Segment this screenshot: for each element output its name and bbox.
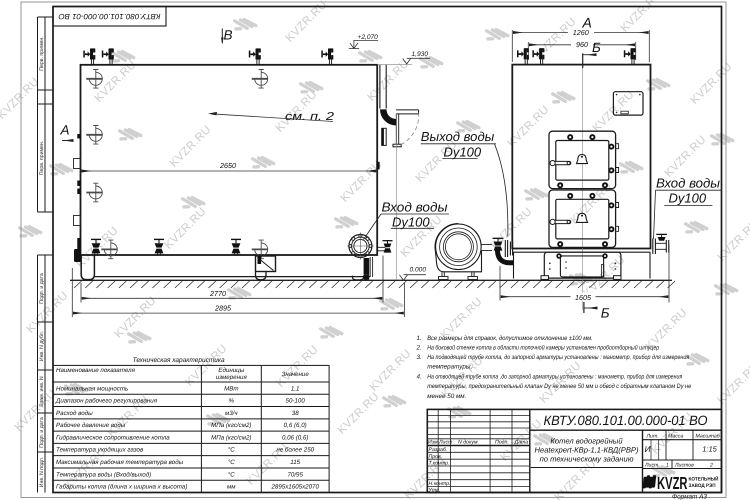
svg-text:1: 1 bbox=[666, 463, 669, 469]
svg-text:0,06 (0,6): 0,06 (0,6) bbox=[282, 435, 308, 442]
svg-text:ЗАВОД РЭП: ЗАВОД РЭП bbox=[689, 483, 716, 489]
svg-text:4.: 4. bbox=[417, 374, 422, 381]
svg-text:Dy100: Dy100 bbox=[392, 215, 430, 230]
svg-text:Масса: Масса bbox=[668, 434, 683, 440]
svg-text:Инв. N дубл.: Инв. N дубл. bbox=[39, 331, 45, 361]
svg-text:KVZR: KVZR bbox=[657, 473, 688, 493]
svg-text:°С: °С bbox=[228, 447, 235, 454]
svg-text:температуры.: температуры. bbox=[427, 364, 472, 371]
svg-text:КВТУ.080.101.00.000-01 ВО: КВТУ.080.101.00.000-01 ВО bbox=[544, 413, 708, 428]
svg-text:Инв. N подл.: Инв. N подл. bbox=[39, 457, 45, 488]
svg-text:0.000: 0.000 bbox=[410, 266, 427, 273]
svg-text:Номинальная мощность: Номинальная мощность bbox=[56, 385, 128, 392]
svg-text:Перв. примен.: Перв. примен. bbox=[39, 141, 45, 176]
svg-text:960: 960 bbox=[576, 40, 588, 49]
svg-text:2.: 2. bbox=[416, 345, 422, 352]
svg-text:измерения: измерения bbox=[216, 374, 248, 381]
svg-text:1,930: 1,930 bbox=[412, 51, 429, 58]
svg-text:115: 115 bbox=[290, 459, 300, 466]
svg-text:Выход воды: Выход воды bbox=[421, 129, 495, 144]
svg-text:Максимальная рабочая температу: Максимальная рабочая температура воды bbox=[56, 459, 184, 466]
svg-text:2895х1605х2070: 2895х1605х2070 bbox=[270, 484, 319, 491]
svg-text:2770: 2770 bbox=[209, 289, 226, 298]
svg-text:Габариты котла (длина х ширина: Габариты котла (длина х ширина х высота) bbox=[56, 484, 187, 491]
svg-text:Вход воды: Вход воды bbox=[656, 176, 720, 191]
svg-text:Лист: Лист bbox=[644, 463, 659, 469]
svg-text:0,6 (6,0): 0,6 (6,0) bbox=[284, 422, 307, 429]
svg-text:КОТЕЛЬНЫЙ: КОТЕЛЬНЫЙ bbox=[689, 476, 719, 483]
svg-text:Температура уходящих газов: Температура уходящих газов bbox=[56, 447, 144, 454]
svg-text:Взам. инв. N: Взам. инв. N bbox=[39, 376, 45, 407]
svg-text:2: 2 bbox=[709, 463, 713, 469]
svg-text:м3/ч: м3/ч bbox=[225, 410, 238, 417]
svg-text:°С: °С bbox=[228, 459, 235, 466]
svg-text:Значение: Значение bbox=[282, 371, 310, 378]
svg-text:Листов: Листов bbox=[674, 463, 694, 469]
svg-text:N докум.: N докум. bbox=[458, 440, 479, 446]
svg-text:Формат А3: Формат А3 bbox=[672, 493, 707, 500]
svg-text:Утв.: Утв. bbox=[429, 488, 441, 494]
svg-text:Dy100: Dy100 bbox=[444, 145, 482, 160]
svg-text:МВт: МВт bbox=[224, 385, 238, 392]
svg-text:МПа (кгс/см2): МПа (кгс/см2) bbox=[211, 422, 251, 429]
svg-text:1:15: 1:15 bbox=[702, 445, 717, 454]
svg-text:И: И bbox=[645, 444, 652, 454]
svg-text:Гидравлическое сопротивление к: Гидравлическое сопротивление котла bbox=[56, 435, 170, 442]
svg-text:Техническая характеристика: Техническая характеристика bbox=[133, 357, 225, 364]
svg-text:1605: 1605 bbox=[575, 293, 592, 302]
svg-text:Подп. и дата: Подп. и дата bbox=[39, 417, 45, 448]
svg-text:Б: Б bbox=[592, 40, 601, 55]
svg-text:Пров.: Пров. bbox=[429, 454, 443, 460]
svg-text:Вход воды: Вход воды bbox=[382, 200, 448, 215]
svg-text:МПа (кгс/см2): МПа (кгс/см2) bbox=[211, 435, 251, 442]
svg-text:Изм.: Изм. bbox=[428, 440, 439, 446]
svg-text:Единицы: Единицы bbox=[218, 367, 244, 374]
svg-text:Т.контр.: Т.контр. bbox=[429, 461, 450, 467]
svg-text:Heatexpert-КВр-1,1-КВД(РВР): Heatexpert-КВр-1,1-КВД(РВР) bbox=[534, 446, 638, 455]
svg-text:Лист: Лист bbox=[438, 440, 453, 446]
svg-text:На отводящей трубе котла ,до з: На отводящей трубе котла ,до запорной ар… bbox=[427, 374, 683, 381]
svg-text:не более 250: не более 250 bbox=[276, 447, 314, 454]
svg-text:Разраб.: Разраб. bbox=[429, 447, 448, 453]
svg-text:На боковой стенке котла в обла: На боковой стенке котла в области топочн… bbox=[427, 345, 659, 352]
svg-text:Перв. примен.: Перв. примен. bbox=[39, 36, 45, 71]
svg-text:А: А bbox=[60, 123, 70, 138]
svg-text:2895: 2895 bbox=[214, 304, 232, 313]
svg-text:70/95: 70/95 bbox=[287, 471, 303, 478]
svg-text:°С: °С bbox=[228, 471, 235, 478]
svg-text:50-100: 50-100 bbox=[286, 398, 306, 405]
svg-text:менее 50 мм.: менее 50 мм. bbox=[427, 393, 466, 400]
svg-text:Температура воды (Вход/выход): Температура воды (Вход/выход) bbox=[56, 471, 151, 478]
svg-text:1.: 1. bbox=[417, 335, 422, 342]
svg-text:Подп. и дата: Подп. и дата bbox=[39, 273, 45, 304]
svg-text:2650: 2650 bbox=[219, 161, 236, 170]
svg-text:Наименование показателя: Наименование показателя bbox=[56, 367, 136, 374]
svg-text:Дата: Дата bbox=[514, 440, 529, 446]
svg-text:Масштаб: Масштаб bbox=[696, 434, 721, 440]
svg-text:КВТУ.080.101.00.000-01 ВО: КВТУ.080.101.00.000-01 ВО bbox=[58, 12, 160, 21]
svg-text:Диапазон рабочего регулировани: Диапазон рабочего регулирования bbox=[55, 398, 158, 405]
svg-text:Dy100: Dy100 bbox=[669, 191, 707, 206]
svg-text:А: А bbox=[582, 15, 592, 31]
svg-text:На подводящей трубе котла, д: На подводящей трубе котла, до запорной а… bbox=[427, 354, 690, 361]
svg-text:Все размеры для справок, допус: Все размеры для справок, допустимое откл… bbox=[427, 335, 593, 342]
svg-text:%: % bbox=[229, 398, 235, 405]
svg-text:температуры, предохранительный: температуры, предохранительный клапан Dу… bbox=[427, 383, 691, 390]
svg-text:мм: мм bbox=[227, 484, 236, 491]
svg-text:Рабочее давление воды: Рабочее давление воды bbox=[56, 422, 126, 429]
svg-text:1,1: 1,1 bbox=[291, 385, 300, 392]
svg-text:Котел водогрейный: Котел водогрейный bbox=[550, 437, 623, 446]
svg-text:Н.контр.: Н.контр. bbox=[429, 481, 451, 487]
svg-text:+2,070: +2,070 bbox=[358, 34, 379, 41]
svg-text:Б: Б bbox=[601, 306, 610, 321]
svg-text:Расход воды: Расход воды bbox=[56, 410, 93, 417]
svg-text:В: В bbox=[224, 28, 233, 43]
svg-text:Подп.: Подп. bbox=[495, 440, 509, 446]
svg-text:по техническому заданию: по техническому заданию bbox=[540, 455, 634, 464]
svg-text:Лит.: Лит. bbox=[646, 434, 659, 440]
svg-text:38: 38 bbox=[292, 410, 299, 417]
svg-text:3.: 3. bbox=[417, 354, 422, 361]
